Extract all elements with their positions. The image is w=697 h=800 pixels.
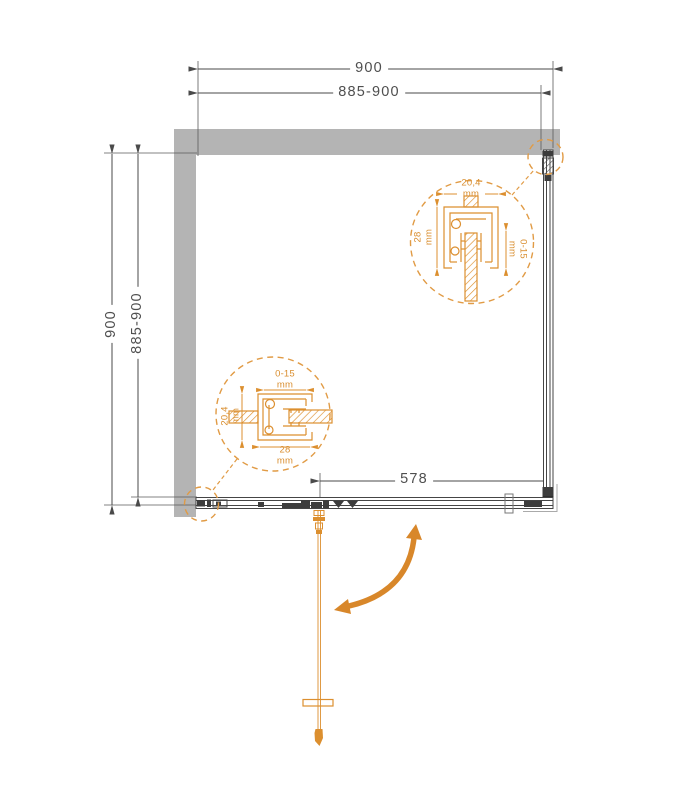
detail-bl-depth-label: 28 mm <box>277 445 293 466</box>
fixed-panel-right <box>543 150 554 508</box>
extension-lines <box>104 61 553 505</box>
detail-bl-adjustment-label: 0-15 mm <box>275 369 295 390</box>
drawing-canvas <box>0 0 697 800</box>
detail-tr-width-label: 20,4 mm <box>461 178 480 199</box>
detail-bl-width-label: 20,4 mm <box>220 406 241 425</box>
detail-tr-depth-label: 28 mm <box>413 229 434 245</box>
detail-callout-circles <box>185 140 564 522</box>
dim-door-opening-label: 578 <box>395 472 433 488</box>
hinged-door <box>303 511 333 747</box>
wall-left <box>174 129 196 517</box>
technical-drawing-page: 900 885-900 900 885-900 578 20,4 mm 28 m… <box>0 0 697 800</box>
detail-top-right-profile <box>437 194 506 301</box>
bottom-rail <box>196 484 557 513</box>
door-bottom-cap <box>315 729 324 746</box>
dim-left-inner-label: 885-900 <box>130 287 146 359</box>
dim-top-outer-label: 900 <box>350 61 388 77</box>
detail-bottom-left-profile <box>229 390 332 447</box>
dim-left-outer-label: 900 <box>104 305 120 343</box>
dim-top-inner-label: 885-900 <box>333 85 405 101</box>
door-swing-arrow <box>334 524 422 614</box>
wall-top <box>174 129 560 155</box>
detail-tr-adjustment-label: 0-15 mm <box>506 239 527 259</box>
